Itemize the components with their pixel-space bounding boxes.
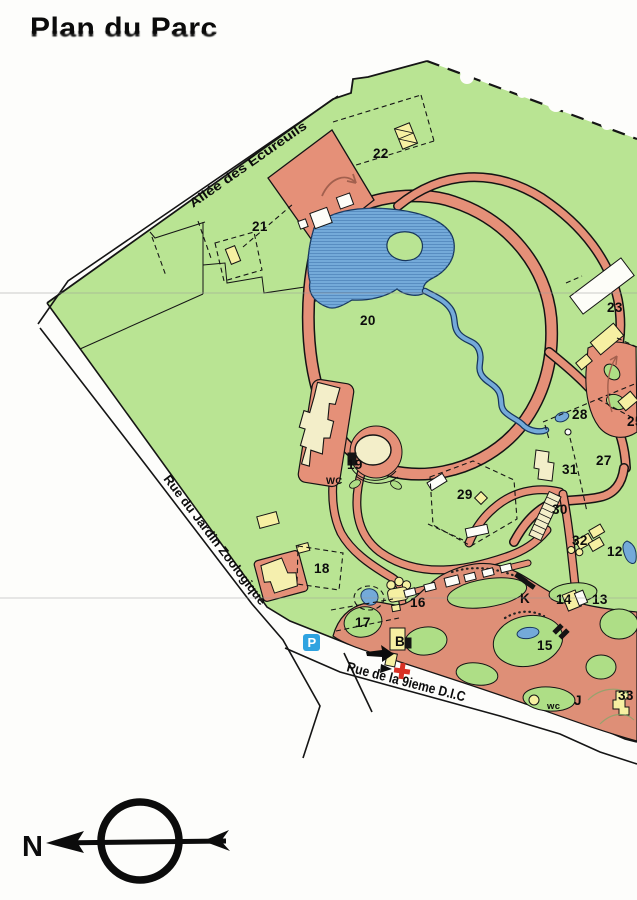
north-arrow bbox=[55, 841, 226, 843]
map-label-WC: WC bbox=[326, 476, 343, 487]
parking-letter: P bbox=[308, 635, 317, 650]
map-label-18: 18 bbox=[314, 561, 330, 576]
parking-badge: P bbox=[303, 634, 320, 651]
survey-node bbox=[565, 429, 571, 435]
map-label-15: 15 bbox=[537, 638, 553, 653]
map-label-J: J bbox=[574, 693, 582, 708]
map-label-13: 13 bbox=[592, 592, 608, 607]
map-title-text: Plan du Parc bbox=[30, 12, 218, 46]
map-label-31: 31 bbox=[562, 462, 578, 477]
park-map-svg: Allée des Ecureuils Rue du Jardin Zoolog… bbox=[0, 0, 637, 900]
map-label-25: 25 bbox=[627, 414, 637, 429]
map-label-14: 14 bbox=[556, 592, 572, 607]
map-label-wc: wc bbox=[546, 701, 560, 712]
map-label-29: 29 bbox=[457, 487, 473, 502]
map-label-16: 16 bbox=[410, 595, 426, 610]
map-label-30: 30 bbox=[552, 502, 568, 517]
map-title: Plan du Parc Plan du Parc bbox=[30, 12, 310, 80]
map-label-B: B bbox=[395, 634, 405, 649]
compass-north-label: N bbox=[22, 831, 43, 863]
compass: N bbox=[22, 802, 230, 880]
map-label-27: 27 bbox=[596, 453, 612, 468]
pond-island bbox=[387, 232, 422, 261]
map-label-33: 33 bbox=[618, 688, 634, 703]
map-label-19: 19 bbox=[347, 457, 363, 472]
map-label-17: 17 bbox=[355, 615, 371, 630]
map-label-22: 22 bbox=[373, 146, 389, 161]
scanned-map-page: Allée des Ecureuils Rue du Jardin Zoolog… bbox=[0, 0, 637, 900]
wc-hut bbox=[529, 695, 539, 705]
map-label-23: 23 bbox=[607, 300, 623, 315]
map-label-21: 21 bbox=[252, 219, 268, 234]
map-label-32: 32 bbox=[572, 533, 588, 548]
map-label-28: 28 bbox=[572, 407, 588, 422]
map-label-12: 12 bbox=[607, 544, 623, 559]
map-label-20: 20 bbox=[360, 313, 376, 328]
